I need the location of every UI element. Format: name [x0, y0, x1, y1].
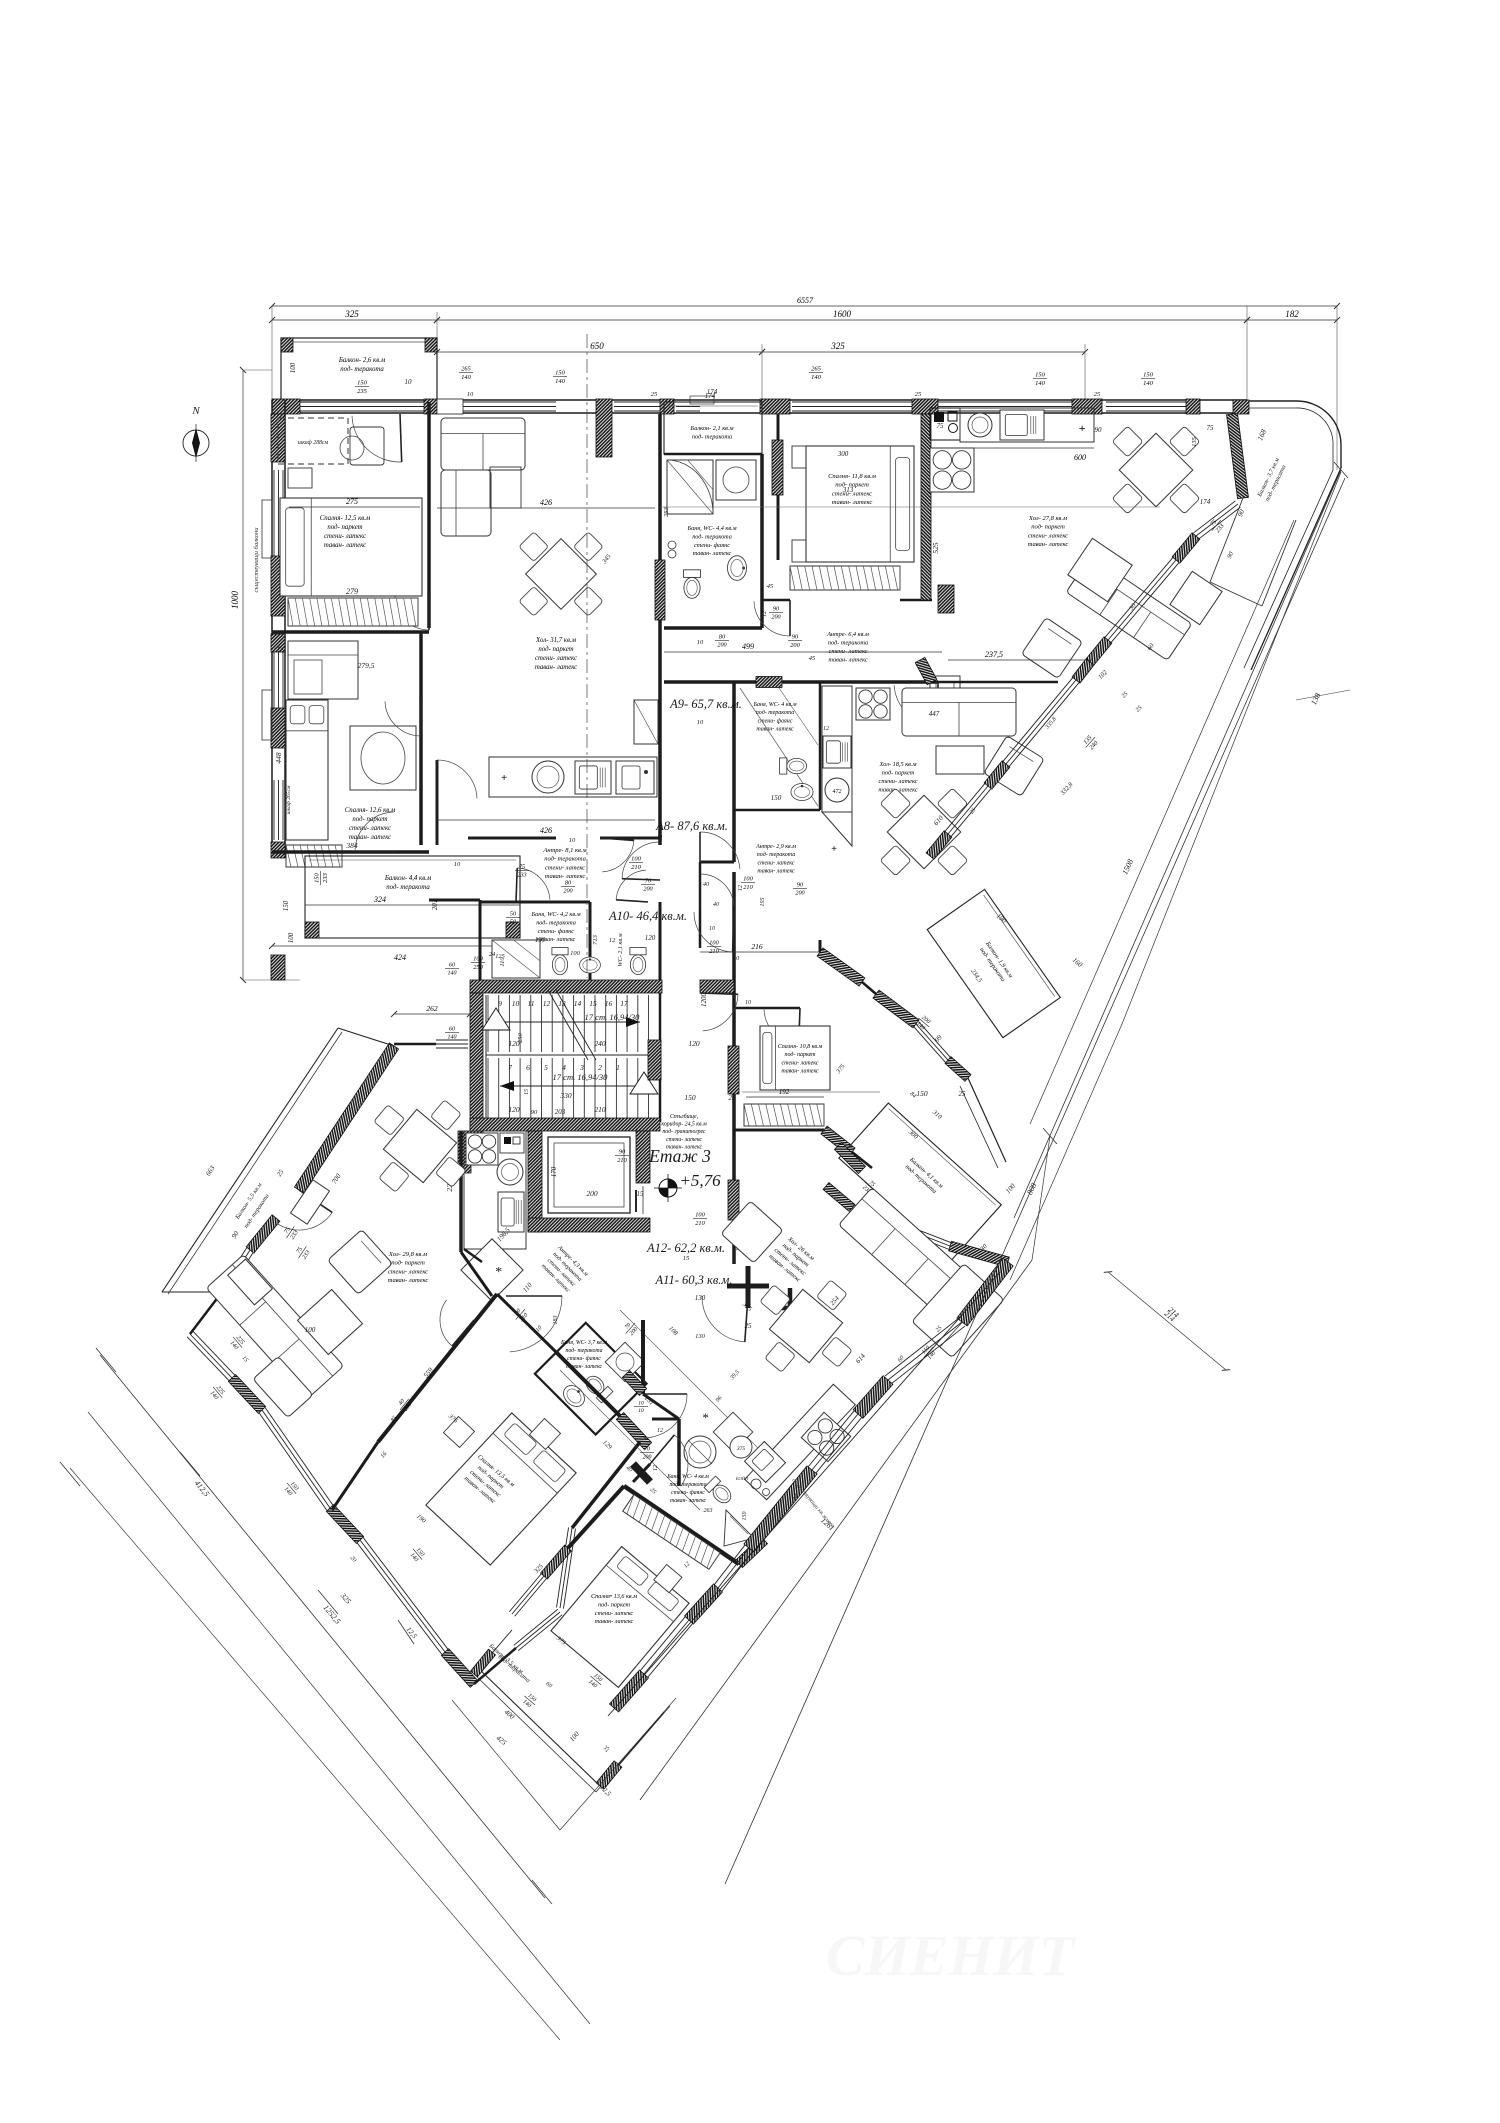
svg-text:А9- 65,7 кв.м.: А9- 65,7 кв.м.: [669, 697, 742, 711]
svg-text:400: 400: [503, 1708, 517, 1721]
svg-text:100: 100: [568, 1730, 581, 1744]
svg-text:60: 60: [449, 1027, 455, 1033]
svg-text:12: 12: [543, 999, 551, 1008]
svg-text:174: 174: [705, 392, 716, 400]
svg-text:25: 25: [276, 1168, 286, 1178]
svg-text:279,5: 279,5: [358, 661, 375, 670]
svg-text:375: 375: [834, 1062, 847, 1075]
svg-text:стени- латекс: стени- латекс: [324, 533, 366, 540]
svg-text:5: 5: [544, 1063, 548, 1072]
svg-text:N: N: [191, 405, 200, 417]
svg-text:150: 150: [916, 1089, 928, 1098]
svg-text:150: 150: [314, 872, 321, 883]
svg-text:100: 100: [287, 932, 295, 943]
svg-text:100: 100: [743, 876, 753, 883]
svg-text:60: 60: [897, 1355, 905, 1363]
svg-text:стени- фаянс: стени- фаянс: [567, 1355, 601, 1362]
svg-text:412,5: 412,5: [193, 1479, 211, 1499]
svg-text:150: 150: [1143, 372, 1154, 379]
svg-text:15: 15: [241, 1355, 249, 1363]
svg-text:200: 200: [643, 886, 653, 893]
svg-text:650: 650: [590, 341, 604, 351]
svg-text:80: 80: [565, 880, 572, 887]
svg-text:под- теракота: под- теракота: [536, 919, 576, 926]
svg-text:170: 170: [550, 1166, 558, 1177]
svg-text:253: 253: [663, 506, 670, 517]
svg-text:+: +: [831, 844, 837, 855]
svg-text:10: 10: [467, 391, 474, 398]
svg-text:125: 125: [495, 953, 504, 960]
svg-text:332,8: 332,8: [1059, 781, 1075, 798]
svg-text:150: 150: [282, 900, 290, 911]
svg-text:140: 140: [555, 378, 566, 385]
svg-text:265: 265: [811, 366, 822, 373]
svg-text:17 ст. 16,94/30: 17 ст. 16,94/30: [585, 1012, 641, 1022]
svg-text:210: 210: [594, 1105, 606, 1114]
svg-text:+: +: [501, 772, 507, 784]
svg-text:*: *: [702, 1410, 709, 1425]
svg-text:182: 182: [1285, 309, 1299, 319]
svg-text:6557: 6557: [797, 296, 814, 305]
svg-text:17 ст. 16,94/30: 17 ст. 16,94/30: [553, 1072, 609, 1082]
svg-text:525: 525: [931, 542, 940, 554]
svg-text:20: 20: [349, 1555, 357, 1563]
svg-text:под- теракота: под- теракота: [756, 709, 794, 716]
svg-text:140: 140: [811, 374, 822, 381]
svg-text:70: 70: [645, 878, 652, 885]
svg-text:140: 140: [1143, 380, 1154, 387]
svg-text:250: 250: [517, 1032, 524, 1043]
svg-text:499: 499: [742, 642, 754, 651]
svg-text:16: 16: [380, 1451, 388, 1459]
svg-text:под- теракота: под- теракота: [386, 884, 430, 891]
svg-text:Спалня- 11,8 кв.м: Спалня- 11,8 кв.м: [828, 473, 876, 480]
svg-text:279: 279: [346, 587, 358, 596]
svg-text:под- теракота: под- теракота: [757, 851, 795, 858]
svg-text:стени- латекс: стени- латекс: [757, 860, 794, 866]
svg-text:Баня, WC- 4,4 кв.м: Баня, WC- 4,4 кв.м: [686, 525, 736, 532]
svg-text:12: 12: [657, 1428, 663, 1434]
svg-text:375: 375: [736, 1446, 746, 1452]
svg-text:375: 375: [740, 1300, 753, 1313]
svg-text:11: 11: [528, 999, 535, 1008]
svg-text:12: 12: [277, 646, 285, 654]
svg-text:таван- латекс: таван- латекс: [756, 727, 794, 733]
svg-text:12: 12: [653, 1465, 659, 1471]
svg-text:под- теракота: под- теракота: [565, 1347, 602, 1354]
svg-text:таван- латекс: таван- латекс: [535, 664, 577, 671]
svg-text:325: 325: [338, 1590, 353, 1605]
svg-text:Хол- 18,5 кв.м: Хол- 18,5 кв.м: [879, 761, 917, 768]
svg-text:325: 325: [830, 341, 845, 351]
svg-text:90: 90: [230, 1229, 241, 1240]
svg-text:90: 90: [531, 1109, 538, 1116]
svg-text:240: 240: [594, 1039, 606, 1048]
svg-text:160: 160: [1071, 956, 1085, 969]
svg-text:25: 25: [1094, 391, 1101, 398]
svg-text:12: 12: [609, 937, 616, 944]
svg-text:50: 50: [510, 919, 517, 926]
svg-text:13: 13: [558, 999, 566, 1008]
svg-text:15: 15: [589, 999, 597, 1008]
svg-text:под- паркет: под- паркет: [882, 770, 915, 777]
svg-text:Хол- 31,7 кв.м: Хол- 31,7 кв.м: [535, 637, 577, 644]
svg-text:120: 120: [508, 1105, 520, 1114]
svg-text:210: 210: [617, 1157, 627, 1164]
svg-text:А12- 62,2 кв.м.: А12- 62,2 кв.м.: [646, 1241, 725, 1255]
svg-text:стени- латекс: стени- латекс: [595, 1610, 633, 1617]
svg-text:120: 120: [688, 1039, 700, 1048]
svg-text:40: 40: [713, 901, 719, 908]
svg-text:съществуващи кв.живot: съществуващи кв.живot: [790, 1477, 835, 1529]
svg-text:Хол- 29,8 кв.м: Хол- 29,8 кв.м: [388, 1251, 427, 1258]
svg-text:210: 210: [695, 1220, 705, 1227]
svg-text:50: 50: [510, 911, 517, 918]
svg-text:108: 108: [667, 1325, 679, 1337]
svg-text:250: 250: [473, 964, 483, 971]
svg-text:под- теракота: под- теракота: [544, 856, 586, 863]
svg-text:10: 10: [638, 1408, 644, 1414]
svg-text:А8- 87,6 кв.м.: А8- 87,6 кв.м.: [655, 819, 728, 833]
svg-text:14: 14: [574, 999, 582, 1008]
svg-text:под- паркет: под- паркет: [1031, 524, 1065, 531]
svg-text:15: 15: [524, 1089, 530, 1095]
svg-text:559: 559: [422, 1366, 435, 1380]
svg-text:7: 7: [508, 1063, 512, 1072]
svg-text:6: 6: [526, 1063, 530, 1072]
svg-text:Баня, WC- 4,2 кв.м: Баня, WC- 4,2 кв.м: [530, 911, 580, 918]
svg-text:265: 265: [461, 366, 470, 373]
svg-text:448: 448: [274, 752, 283, 764]
svg-text:100: 100: [709, 940, 719, 947]
svg-text:262: 262: [426, 1004, 438, 1013]
svg-text:1: 1: [616, 1063, 620, 1072]
svg-text:стени- фаянс: стени- фаянс: [694, 542, 730, 549]
svg-text:130: 130: [695, 1333, 706, 1340]
svg-text:коридор- 24,5 кв.м: коридор- 24,5 кв.м: [661, 1121, 707, 1128]
svg-text:75: 75: [519, 864, 525, 871]
svg-text:таван- латекс: таван- латекс: [693, 550, 732, 557]
svg-text:150: 150: [771, 794, 782, 802]
svg-text:447: 447: [929, 710, 940, 718]
svg-text:под- теракота: под- теракота: [340, 366, 384, 373]
svg-text:3: 3: [579, 1063, 584, 1072]
svg-text:таван- латекс: таван- латекс: [670, 1498, 707, 1504]
svg-text:стени- латекс: стени- латекс: [545, 864, 585, 871]
svg-text:таван- латекс: таван- латекс: [388, 1277, 429, 1284]
svg-text:25: 25: [648, 1487, 656, 1495]
svg-text:12,5: 12,5: [598, 1783, 613, 1798]
svg-text:под- паркет: под- паркет: [327, 524, 362, 531]
svg-text:стени- латекс: стени- латекс: [349, 825, 391, 832]
svg-text:90: 90: [797, 882, 804, 889]
svg-text:стени- латекс: стени- латекс: [535, 655, 577, 662]
svg-text:200: 200: [771, 614, 781, 621]
svg-text:100: 100: [1004, 1182, 1017, 1196]
svg-text:25: 25: [603, 1745, 611, 1753]
svg-text:10: 10: [454, 861, 461, 868]
svg-text:313: 313: [842, 486, 854, 494]
svg-text:под- терасата: под- терасата: [497, 1653, 532, 1684]
svg-text:10: 10: [512, 999, 520, 1008]
svg-text:100: 100: [473, 956, 483, 963]
svg-text:10: 10: [709, 926, 715, 932]
svg-text:80: 80: [719, 634, 726, 641]
svg-text:60: 60: [449, 963, 455, 969]
svg-text:под- паркет: под- паркет: [538, 646, 573, 653]
svg-text:300: 300: [906, 1128, 919, 1141]
svg-text:Спалня- 12,5 кв.м: Спалня- 12,5 кв.м: [320, 515, 371, 522]
svg-text:шкаф 265см: шкаф 265см: [285, 785, 292, 814]
svg-text:75: 75: [1207, 424, 1215, 432]
svg-text:472: 472: [833, 788, 842, 795]
svg-text:таван- латекс: таван- латекс: [832, 499, 873, 506]
svg-text:183: 183: [553, 1316, 559, 1325]
svg-text:Спалня- 10,8 кв.м: Спалня- 10,8 кв.м: [778, 1044, 823, 1050]
svg-text:130: 130: [695, 1294, 706, 1302]
svg-text:150: 150: [357, 380, 368, 387]
svg-text:330: 330: [559, 1091, 572, 1100]
svg-text:150: 150: [684, 1093, 696, 1102]
svg-text:99: 99: [933, 1033, 944, 1044]
svg-text:таван- латекс: таван- латекс: [349, 834, 391, 841]
svg-text:*: *: [495, 1265, 502, 1280]
svg-text:600: 600: [1074, 453, 1086, 462]
svg-text:25: 25: [915, 391, 922, 398]
svg-text:WC- 2,1 кв.м: WC- 2,1 кв.м: [617, 933, 624, 966]
svg-text:12: 12: [761, 611, 768, 617]
svg-text:45: 45: [767, 583, 774, 590]
svg-text:120: 120: [645, 934, 656, 942]
svg-text:стени- латекс: стени- латекс: [388, 1268, 428, 1275]
svg-text:237,5: 237,5: [985, 650, 1003, 659]
svg-text:235: 235: [357, 388, 368, 395]
svg-text:425: 425: [495, 1734, 509, 1747]
svg-text:Баня, WC- 3,7 кв.м: Баня, WC- 3,7 кв.м: [560, 1340, 607, 1346]
svg-text:100: 100: [289, 362, 297, 373]
svg-text:10: 10: [405, 378, 413, 386]
svg-text:2: 2: [598, 1063, 602, 1072]
svg-text:150: 150: [742, 1512, 748, 1521]
svg-text:стени- латекс: стени- латекс: [829, 648, 868, 655]
svg-text:426: 426: [540, 498, 552, 507]
svg-text:39,5: 39,5: [729, 1369, 741, 1382]
svg-text:БОЙЛ: БОЙЛ: [735, 1475, 749, 1481]
svg-text:40: 40: [703, 881, 709, 888]
svg-text:таван- латекс: таван- латекс: [757, 869, 795, 875]
svg-text:10: 10: [697, 639, 704, 646]
svg-text:4: 4: [562, 1063, 566, 1072]
svg-text:12: 12: [738, 885, 744, 891]
svg-text:Спалня• 13,6 кв.м: Спалня• 13,6 кв.м: [591, 1593, 637, 1600]
svg-text:90: 90: [1226, 550, 1236, 560]
svg-text:25: 25: [729, 1094, 737, 1102]
svg-text:под- паркет: под- паркет: [352, 816, 387, 823]
svg-text:345: 345: [600, 552, 613, 565]
svg-text:стени- фаянс: стени- фаянс: [538, 928, 574, 935]
svg-text:10: 10: [569, 837, 576, 844]
svg-text:под- гранитогрес: под- гранитогрес: [662, 1128, 706, 1135]
svg-text:234,5: 234,5: [969, 968, 984, 985]
svg-text:10: 10: [697, 719, 704, 726]
svg-text:140: 140: [448, 1034, 457, 1041]
svg-text:100: 100: [305, 1326, 316, 1334]
svg-text:стени- латекс: стени- латекс: [666, 1137, 702, 1143]
svg-text:195: 195: [760, 898, 766, 907]
svg-text:17: 17: [620, 999, 628, 1008]
svg-text:стени- латекс: стени- латекс: [1028, 532, 1068, 539]
svg-text:426: 426: [540, 826, 552, 835]
svg-text:140: 140: [461, 374, 471, 381]
svg-text:Етаж 3: Етаж 3: [648, 1146, 711, 1166]
svg-text:138: 138: [1309, 692, 1322, 707]
svg-text:200: 200: [717, 642, 727, 649]
svg-text:210: 210: [631, 864, 642, 871]
svg-text:210: 210: [743, 884, 753, 891]
svg-text:203: 203: [555, 1108, 566, 1116]
svg-text:90: 90: [792, 634, 799, 641]
svg-text:174: 174: [1200, 498, 1211, 506]
svg-text:135: 135: [1191, 436, 1198, 447]
svg-text:150: 150: [1035, 372, 1046, 379]
svg-text:А10- 46,4 кв.м.: А10- 46,4 кв.м.: [608, 909, 687, 923]
svg-text:90: 90: [1095, 426, 1103, 434]
svg-text:под- паркет: под- паркет: [784, 1051, 816, 1058]
svg-text:200: 200: [586, 1189, 598, 1198]
svg-text:25: 25: [651, 391, 658, 398]
svg-text:140: 140: [1035, 380, 1046, 387]
svg-text:Антре- 2,9 кв.м: Антре- 2,9 кв.м: [755, 844, 796, 850]
svg-text:под- теракота: под- теракота: [669, 1481, 706, 1488]
svg-text:таван- латекс: таван- латекс: [324, 542, 366, 549]
svg-text:под- теракота: под- теракота: [692, 434, 732, 441]
svg-text:под- теракота: под- теракота: [692, 533, 732, 540]
svg-text:310: 310: [930, 1108, 943, 1121]
svg-text:1000: 1000: [230, 591, 240, 610]
svg-text:324: 324: [373, 895, 386, 904]
svg-text:90: 90: [1236, 508, 1246, 518]
svg-text:200: 200: [643, 1454, 652, 1460]
svg-text:1508: 1508: [1120, 858, 1135, 876]
svg-text:325: 325: [344, 309, 359, 319]
svg-text:100: 100: [570, 950, 581, 957]
svg-text:614: 614: [854, 1352, 867, 1366]
svg-text:45: 45: [809, 655, 816, 662]
svg-text:съществуващи балкони: съществуващи балкони: [253, 527, 260, 593]
svg-text:233: 233: [517, 872, 526, 879]
svg-text:стени- латекс: стени- латекс: [781, 1060, 818, 1066]
svg-text:424: 424: [394, 953, 406, 962]
svg-text:Балкон- 2,1 кв.м: Балкон- 2,1 кв.м: [690, 425, 734, 432]
svg-text:190: 190: [415, 1513, 428, 1525]
svg-text:60: 60: [544, 1681, 552, 1689]
svg-text:10: 10: [745, 1000, 751, 1006]
svg-text:275: 275: [346, 497, 358, 506]
svg-text:таван- латекс: таван- латекс: [595, 1618, 634, 1625]
svg-text:1200: 1200: [700, 993, 708, 1008]
svg-text:75: 75: [937, 422, 945, 430]
svg-text:110: 110: [521, 1281, 534, 1294]
svg-text:таван- латекс: таван- латекс: [781, 1069, 819, 1075]
svg-text:216: 216: [751, 942, 763, 951]
svg-text:Баня, WC- 4 кв.м: Баня, WC- 4 кв.м: [666, 1473, 709, 1480]
svg-text:Антре- 8,1 кв.м: Антре- 8,1 кв.м: [542, 847, 586, 854]
svg-text:таван- латекс: таван- латекс: [828, 657, 867, 664]
svg-text:стени- фаянс: стени- фаянс: [671, 1489, 705, 1496]
svg-text:233: 233: [322, 872, 329, 883]
svg-text:Спалня- 12,6 кв.м: Спалня- 12,6 кв.м: [345, 807, 396, 814]
svg-text:25: 25: [745, 1322, 753, 1330]
svg-text:16: 16: [605, 999, 613, 1008]
svg-text:9: 9: [498, 999, 502, 1008]
svg-text:25: 25: [1135, 705, 1143, 713]
svg-text:140: 140: [448, 970, 457, 977]
svg-text:Антре- 6,4 кв.м: Антре- 6,4 кв.м: [826, 631, 869, 638]
svg-text:90: 90: [773, 606, 780, 613]
svg-text:под- теракота: под- теракота: [828, 640, 868, 647]
svg-text:+5,76: +5,76: [679, 1171, 721, 1190]
svg-text:Стълбище,: Стълбище,: [670, 1113, 699, 1120]
svg-text:15: 15: [683, 1255, 690, 1262]
svg-text:стени- фаянс: стени- фаянс: [758, 717, 793, 724]
svg-text:25: 25: [969, 807, 977, 815]
svg-text:263: 263: [704, 1508, 713, 1514]
svg-text:СИЕНИТ: СИЕНИТ: [826, 1923, 1077, 1988]
svg-text:713: 713: [592, 934, 599, 945]
svg-text:102: 102: [1097, 668, 1109, 680]
svg-text:+: +: [1079, 421, 1086, 435]
svg-text:129: 129: [601, 1439, 613, 1451]
svg-text:15: 15: [637, 1190, 645, 1198]
svg-text:А11- 60,3 кв.м.: А11- 60,3 кв.м.: [655, 1273, 733, 1287]
svg-text:70: 70: [644, 1447, 650, 1453]
svg-text:1600: 1600: [833, 309, 852, 319]
svg-text:100: 100: [695, 1212, 705, 1219]
svg-text:25: 25: [1121, 691, 1129, 699]
svg-text:стени- латекс: стени- латекс: [879, 778, 918, 785]
svg-text:200: 200: [563, 888, 573, 895]
svg-text:335,8: 335,8: [1044, 716, 1058, 731]
svg-text:под- паркет: под- паркет: [391, 1260, 425, 1267]
svg-text:150: 150: [555, 370, 566, 377]
svg-text:12: 12: [683, 1561, 691, 1569]
svg-text:700: 700: [330, 1172, 343, 1186]
svg-text:Хол- 27,8 кв.м: Хол- 27,8 кв.м: [1028, 515, 1067, 522]
svg-text:под- паркет: под- паркет: [598, 1601, 631, 1608]
svg-text:12: 12: [823, 726, 829, 732]
svg-text:96: 96: [715, 1395, 723, 1403]
svg-text:200: 200: [790, 642, 800, 649]
svg-text:300: 300: [837, 450, 849, 458]
svg-text:199: 199: [535, 936, 546, 944]
svg-text:Балкон- 4,4 кв.м: Балкон- 4,4 кв.м: [384, 875, 432, 882]
svg-text:таван- латекс: таван- латекс: [1028, 541, 1069, 548]
svg-text:663: 663: [204, 1164, 217, 1178]
svg-text:10: 10: [638, 1401, 644, 1407]
svg-text:200: 200: [795, 890, 805, 897]
svg-text:шкаф 288см: шкаф 288см: [298, 439, 329, 446]
svg-text:168: 168: [1255, 428, 1268, 442]
svg-text:90: 90: [619, 1149, 626, 1156]
svg-text:100: 100: [631, 856, 642, 863]
svg-text:Балкон- 2,6 кв.м: Балкон- 2,6 кв.м: [338, 357, 386, 364]
